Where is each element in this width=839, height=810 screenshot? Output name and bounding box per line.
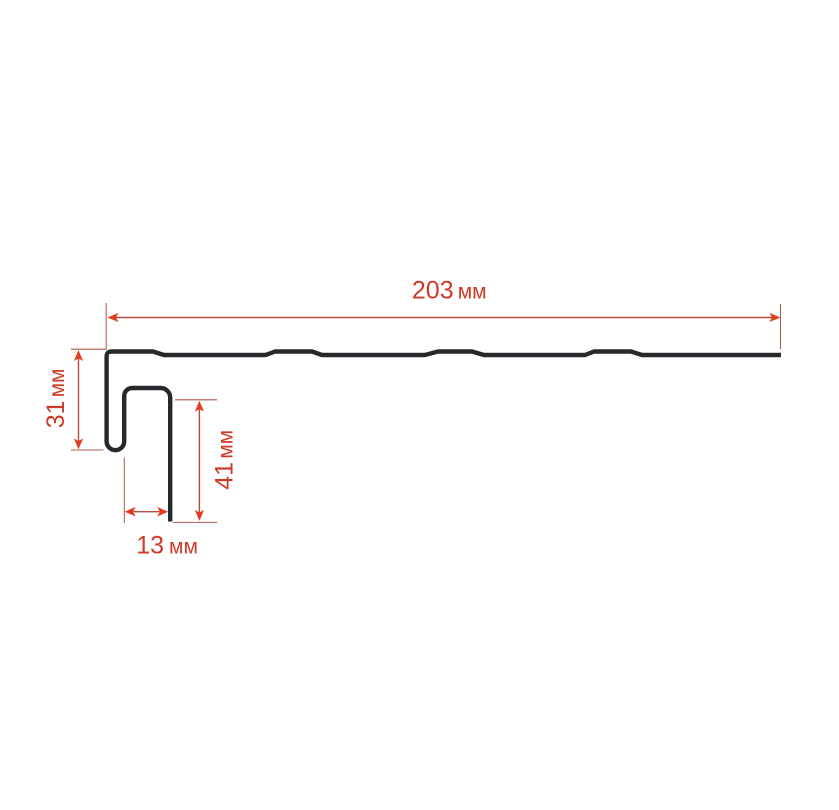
- svg-text:13: 13: [136, 531, 164, 559]
- svg-text:203: 203: [412, 277, 454, 305]
- svg-text:мм: мм: [169, 535, 198, 558]
- svg-text:мм: мм: [458, 281, 487, 304]
- svg-text:31: 31: [42, 400, 70, 428]
- svg-text:мм: мм: [46, 369, 69, 398]
- svg-text:41: 41: [210, 462, 238, 490]
- svg-text:мм: мм: [214, 430, 237, 459]
